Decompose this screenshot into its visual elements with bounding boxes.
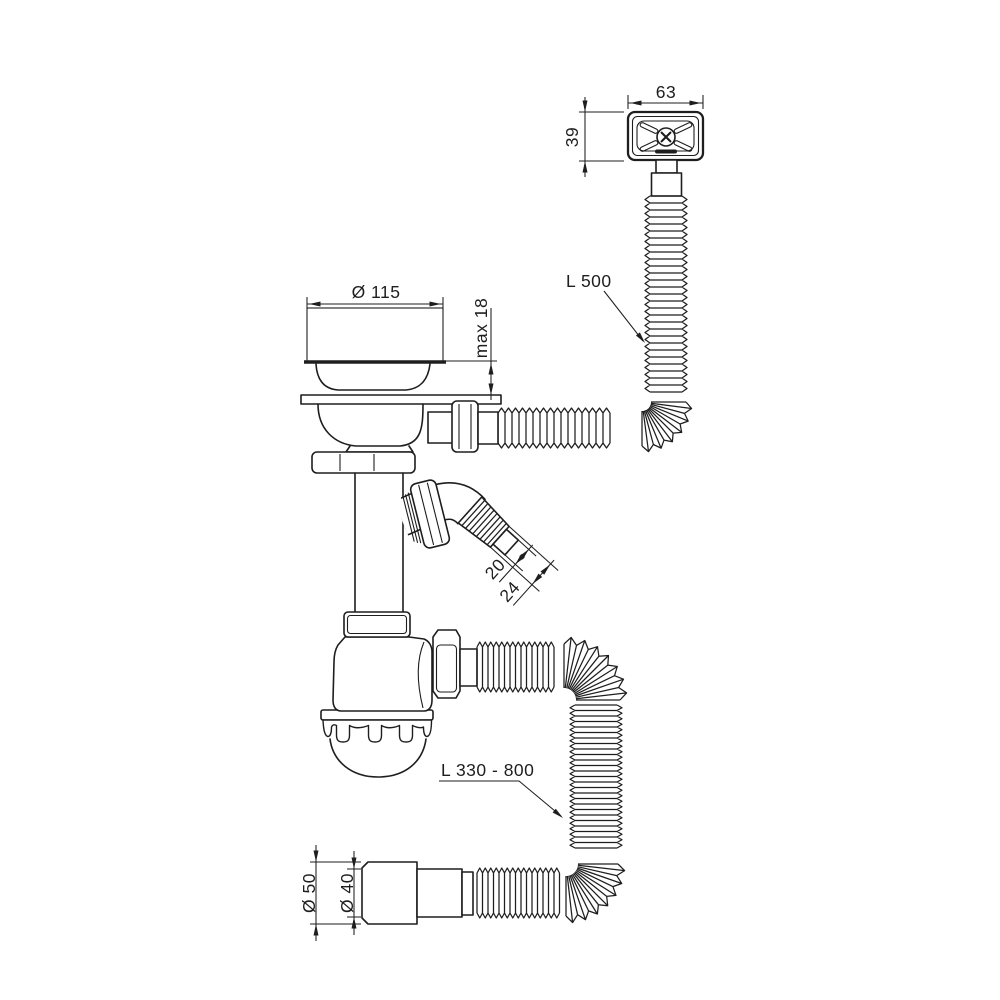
dim-grate-height-label: 39 — [562, 127, 582, 147]
dim-outlet-outer-label: Ø 50 — [299, 873, 319, 913]
grate-socket — [652, 173, 682, 196]
dimension-arrowhead — [430, 302, 442, 307]
dim-strainer-diameter-label: Ø 115 — [352, 282, 401, 302]
dimension-arrowhead — [352, 858, 357, 870]
dimension-arrowhead — [553, 809, 565, 820]
dimension-arrowhead — [489, 363, 494, 375]
dim-grate-width-label: 63 — [656, 82, 676, 102]
dimension-arrowhead — [352, 917, 357, 929]
bottle-trap — [321, 612, 477, 777]
grate-bottom-slot — [655, 150, 677, 154]
strainer-flange — [307, 308, 443, 362]
label-overflow-hose-length: L 500 — [566, 271, 643, 341]
dim-outlet-inner-diameter: Ø 40 — [337, 851, 361, 935]
grate-screw-icon — [657, 128, 675, 146]
dimension-arrowhead — [314, 924, 319, 936]
dishwasher-elbow: 20 24 — [401, 479, 562, 614]
trap-skirt — [323, 720, 432, 742]
strainer-base-ring — [346, 446, 413, 452]
dimension-arrowhead — [583, 161, 588, 173]
grate-neck — [656, 160, 677, 173]
strainer-upper-bowl — [316, 364, 430, 390]
overflow-hose — [498, 196, 692, 452]
dimension-arrowhead — [690, 101, 702, 106]
dim-sink-thickness-label: max 18 — [471, 298, 491, 358]
dimension-arrowhead — [309, 302, 321, 307]
outlet-end-step-cylinder — [417, 869, 462, 917]
drawing-canvas: 20 24 63 39 Ø 115 max 18 — [0, 0, 1000, 1000]
overflow-hose-length-label: L 500 — [566, 271, 612, 291]
dim-sink-thickness: max 18 — [441, 298, 497, 400]
outlet-end-piece — [362, 862, 473, 924]
outlet-end-large-cylinder — [362, 862, 417, 924]
dim-strainer-diameter: Ø 115 — [307, 282, 443, 309]
trap-outlet-neck — [460, 649, 477, 686]
dimension-arrowhead — [630, 101, 642, 106]
overflow-sleeve — [478, 412, 498, 444]
overflow-grate — [628, 112, 703, 196]
dim-nozzle-inner-label: 20 — [481, 555, 510, 584]
strainer-locknut — [312, 452, 415, 473]
outlet-end-ring — [462, 872, 473, 915]
overflow-nut — [452, 401, 478, 452]
tailpipe — [355, 473, 403, 612]
plumbing-diagram: 20 24 63 39 Ø 115 max 18 — [0, 0, 1000, 1000]
dim-grate-height: 39 — [562, 97, 624, 177]
overflow-boss — [428, 412, 453, 443]
trap-cup — [330, 739, 426, 777]
dimension-arrowhead — [583, 101, 588, 113]
label-outlet-hose-length: L 330 - 800 — [439, 760, 561, 816]
dimension-arrowhead — [636, 332, 647, 344]
trap-body — [333, 637, 432, 711]
dimension-arrowhead — [489, 384, 494, 396]
outlet-hose-length-label: L 330 - 800 — [441, 760, 534, 780]
dim-outlet-inner-label: Ø 40 — [337, 873, 357, 913]
dimension-arrows — [309, 101, 701, 936]
strainer-lower-bowl — [318, 404, 423, 446]
dimension-arrowhead — [314, 851, 319, 863]
outlet-hose — [477, 637, 627, 922]
